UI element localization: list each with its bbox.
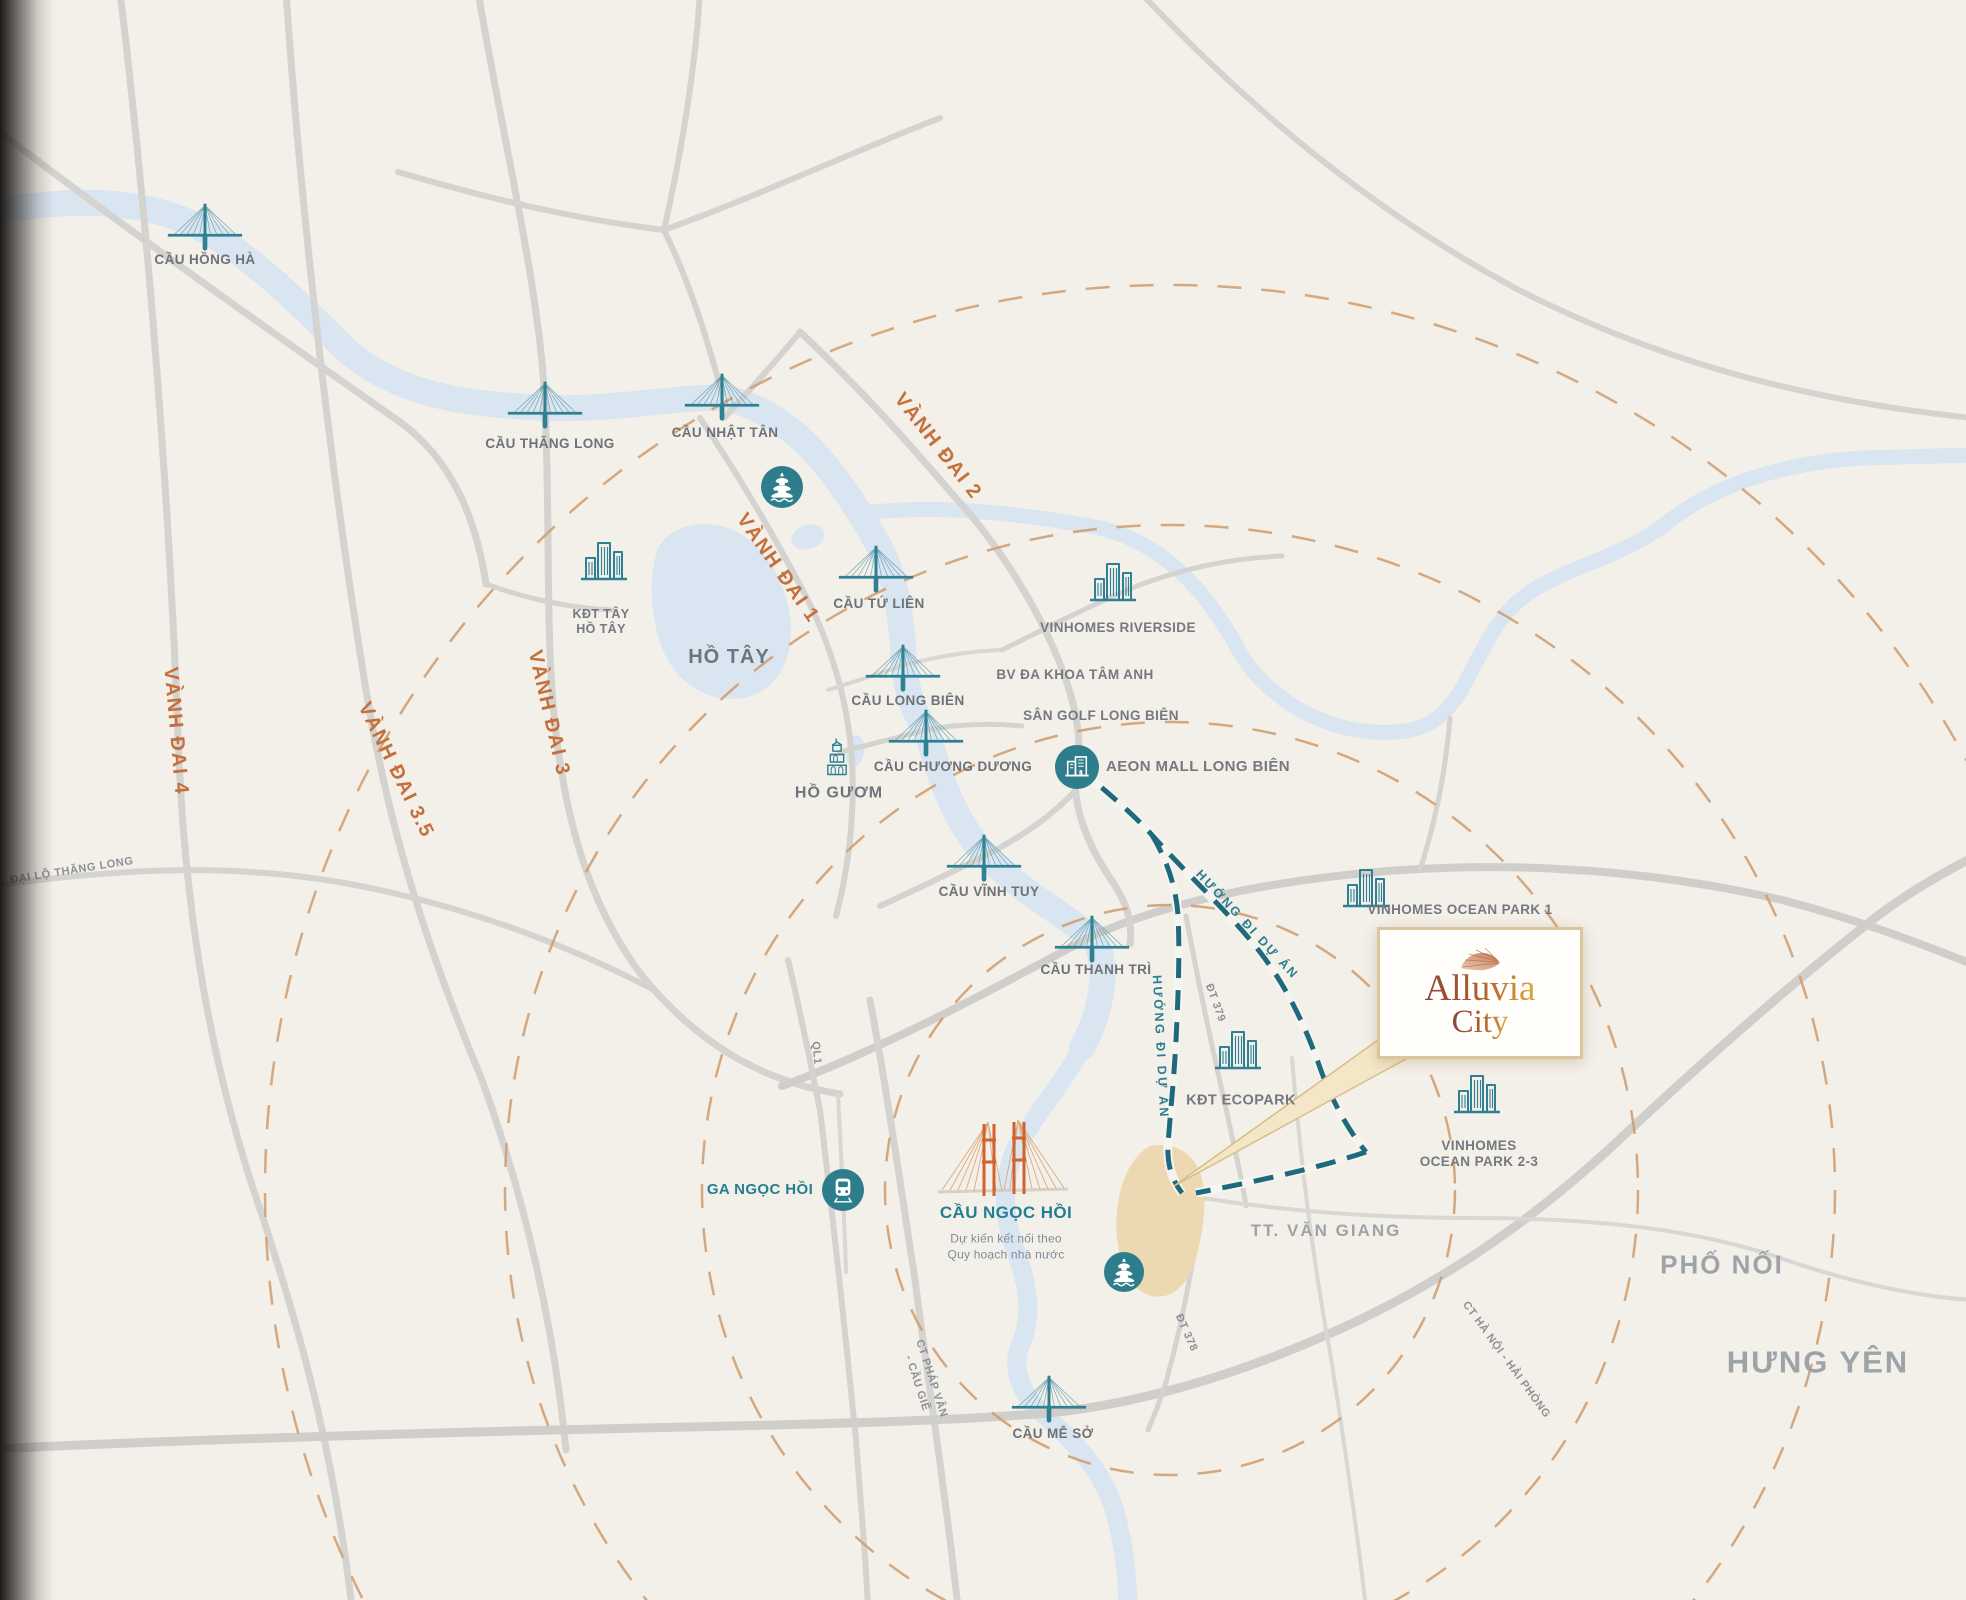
cau-ngoc-hoi-label-text: CẦU NGỌC HỒI bbox=[940, 1203, 1072, 1223]
cau-chuong-duong-label: CẦU CHƯƠNG DƯƠNG bbox=[874, 759, 1032, 775]
label-vanh-dai-3-5-text: VÀNH ĐAI 3.5 bbox=[353, 698, 439, 842]
label-aeon-mall-long-bien: AEON MALL LONG BIÊN bbox=[1106, 758, 1290, 776]
label-vanh-dai-4-text: VÀNH ĐAI 4 bbox=[158, 666, 193, 796]
label-bv-da-khoa-tam-anh: BV ĐA KHOA TÂM ANH bbox=[996, 667, 1153, 683]
label-ct-ha-noi-hai-phong-text: CT HÀ NỘI - HẢI PHÒNG bbox=[1459, 1299, 1554, 1422]
cau-ngoc-hoi-subtitle: Dự kiến kết nối theoQuy hoạch nhà nước bbox=[948, 1231, 1065, 1262]
label-vanh-dai-4: VÀNH ĐAI 4 bbox=[158, 666, 193, 796]
label-ho-tay: HỒ TÂY bbox=[688, 645, 770, 669]
label-hung-yen-text: HƯNG YÊN bbox=[1727, 1343, 1909, 1380]
label-dai-lo-thang-long: ĐẠI LỘ THĂNG LONG bbox=[9, 854, 134, 888]
cau-thang-long-label-text: CẦU THĂNG LONG bbox=[485, 436, 614, 452]
label-vanh-dai-1: VÀNH ĐAI 1 bbox=[731, 509, 824, 628]
cau-long-bien-label-text: CẦU LONG BIÊN bbox=[851, 693, 964, 709]
kdt-tay-ho-tay-label-text: HỒ TÂY bbox=[573, 622, 630, 637]
map-labels: CẦU HỒNG HÀCẦU THĂNG LONGCẦU NHẬT TÂNCẦU… bbox=[0, 0, 1966, 1600]
label-ga-ngoc-hoi-text: GA NGỌC HỒI bbox=[707, 1181, 813, 1199]
label-ho-tay-text: HỒ TÂY bbox=[688, 645, 770, 669]
cau-me-so-label: CẦU MỄ SỞ bbox=[1012, 1426, 1093, 1442]
location-map: CẦU HỒNG HÀCẦU THĂNG LONGCẦU NHẬT TÂNCẦU… bbox=[0, 0, 1966, 1600]
cau-tu-lien-label: CẦU TỨ LIÊN bbox=[833, 596, 924, 612]
cau-nhat-tan-label-text: CẦU NHẬT TÂN bbox=[672, 425, 779, 441]
label-vanh-dai-1-text: VÀNH ĐAI 1 bbox=[731, 509, 824, 628]
label-dt-379: ĐT 379 bbox=[1201, 982, 1229, 1024]
cau-thanh-tri-label: CẦU THANH TRÌ bbox=[1041, 962, 1152, 978]
cau-ngoc-hoi-label: CẦU NGỌC HỒI bbox=[940, 1203, 1072, 1223]
label-pho-noi-text: PHỐ NỐI bbox=[1660, 1249, 1784, 1280]
vinhomes-riverside-label: VINHOMES RIVERSIDE bbox=[1040, 620, 1196, 636]
label-hung-yen: HƯNG YÊN bbox=[1727, 1343, 1909, 1380]
cau-hong-ha-label-text: CẦU HỒNG HÀ bbox=[154, 252, 255, 268]
kdt-ecopark-label-text: KĐT ECOPARK bbox=[1186, 1092, 1296, 1109]
label-tt-van-giang: TT. VĂN GIANG bbox=[1251, 1221, 1402, 1241]
label-ct-ha-noi-hai-phong: CT HÀ NỘI - HẢI PHÒNG bbox=[1459, 1299, 1554, 1422]
cau-long-bien-label: CẦU LONG BIÊN bbox=[851, 693, 964, 709]
label-bv-da-khoa-tam-anh-text: BV ĐA KHOA TÂM ANH bbox=[996, 667, 1153, 683]
label-pho-noi: PHỐ NỐI bbox=[1660, 1249, 1784, 1280]
cau-hong-ha-label: CẦU HỒNG HÀ bbox=[154, 252, 255, 268]
vinhomes-ocean-park-2-3-label: VINHOMESOCEAN PARK 2-3 bbox=[1420, 1138, 1539, 1170]
label-dt-378: ĐT 378 bbox=[1171, 1312, 1201, 1354]
vinhomes-ocean-park-2-3-label-text: OCEAN PARK 2-3 bbox=[1420, 1154, 1539, 1170]
cau-chuong-duong-label-text: CẦU CHƯƠNG DƯƠNG bbox=[874, 759, 1032, 775]
project-name-line2: City bbox=[1452, 1006, 1509, 1039]
vinhomes-ocean-park-1-label-text: VINHOMES OCEAN PARK 1 bbox=[1367, 902, 1552, 918]
vinhomes-ocean-park-1-label: VINHOMES OCEAN PARK 1 bbox=[1367, 902, 1552, 918]
cau-nhat-tan-label: CẦU NHẬT TÂN bbox=[672, 425, 779, 441]
cau-ngoc-hoi-subtitle-text: Quy hoạch nhà nước bbox=[948, 1247, 1065, 1263]
label-huong-di-du-an-ne: HƯỚNG ĐI DỰ ÁN bbox=[1192, 867, 1301, 983]
cau-vinh-tuy-label: CẦU VĨNH TUY bbox=[939, 884, 1040, 900]
label-vanh-dai-3-text: VÀNH ĐAI 3 bbox=[523, 648, 575, 778]
label-huong-di-du-an-s: HƯỚNG ĐI DỰ ÁN bbox=[1149, 975, 1172, 1120]
label-vanh-dai-3: VÀNH ĐAI 3 bbox=[523, 648, 575, 778]
label-vanh-dai-2: VÀNH ĐAI 2 bbox=[889, 388, 987, 504]
cau-vinh-tuy-label-text: CẦU VĨNH TUY bbox=[939, 884, 1040, 900]
label-aeon-mall-long-bien-text: AEON MALL LONG BIÊN bbox=[1106, 758, 1290, 776]
alluvia-city-callout: Alluvia City bbox=[1377, 927, 1583, 1059]
label-ct-phap-van: CT PHÁP VÂN- CẦU GIẼ bbox=[897, 1338, 950, 1424]
label-vanh-dai-3-5: VÀNH ĐAI 3.5 bbox=[353, 698, 439, 842]
cau-me-so-label-text: CẦU MỄ SỞ bbox=[1012, 1426, 1093, 1442]
label-huong-di-du-an-ne-text: HƯỚNG ĐI DỰ ÁN bbox=[1192, 867, 1301, 983]
label-dai-lo-thang-long-text: ĐẠI LỘ THĂNG LONG bbox=[9, 854, 134, 888]
vinhomes-riverside-label-text: VINHOMES RIVERSIDE bbox=[1040, 620, 1196, 636]
label-ho-guom-text: HỒ GƯƠM bbox=[795, 783, 883, 802]
label-ql1-text: QL1 bbox=[808, 1041, 825, 1065]
label-huong-di-du-an-s-text: HƯỚNG ĐI DỰ ÁN bbox=[1149, 975, 1172, 1120]
project-name-line1: Alluvia bbox=[1425, 971, 1536, 1006]
label-vanh-dai-2-text: VÀNH ĐAI 2 bbox=[889, 388, 987, 504]
label-tt-van-giang-text: TT. VĂN GIANG bbox=[1251, 1221, 1402, 1241]
kdt-tay-ho-tay-label: KĐT TÂYHỒ TÂY bbox=[573, 607, 630, 637]
label-ga-ngoc-hoi: GA NGỌC HỒI bbox=[707, 1181, 813, 1199]
kdt-ecopark-label: KĐT ECOPARK bbox=[1186, 1092, 1296, 1109]
kdt-tay-ho-tay-label-text: KĐT TÂY bbox=[573, 607, 630, 622]
label-dt-379-text: ĐT 379 bbox=[1201, 982, 1229, 1024]
label-san-golf-long-bien-text: SÂN GOLF LONG BIÊN bbox=[1023, 708, 1179, 724]
vinhomes-ocean-park-2-3-label-text: VINHOMES bbox=[1420, 1138, 1539, 1154]
cau-ngoc-hoi-subtitle-text: Dự kiến kết nối theo bbox=[948, 1231, 1065, 1247]
cau-thanh-tri-label-text: CẦU THANH TRÌ bbox=[1041, 962, 1152, 978]
cau-tu-lien-label-text: CẦU TỨ LIÊN bbox=[833, 596, 924, 612]
label-ho-guom: HỒ GƯƠM bbox=[795, 783, 883, 802]
label-san-golf-long-bien: SÂN GOLF LONG BIÊN bbox=[1023, 708, 1179, 724]
label-dt-378-text: ĐT 378 bbox=[1171, 1312, 1201, 1354]
label-ql1: QL1 bbox=[808, 1041, 825, 1065]
cau-thang-long-label: CẦU THĂNG LONG bbox=[485, 436, 614, 452]
